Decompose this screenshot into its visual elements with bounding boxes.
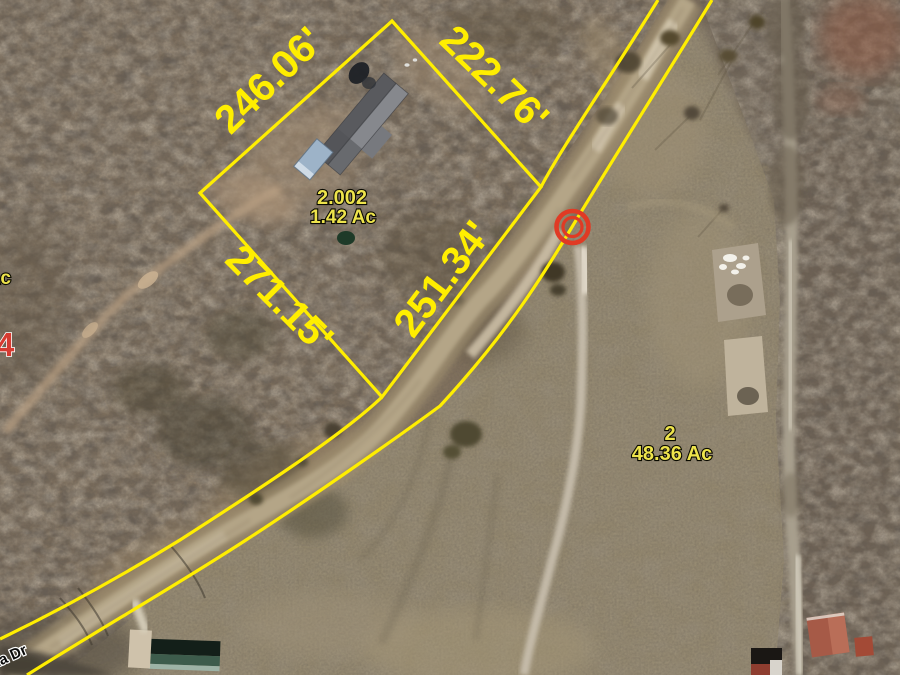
svg-text:Ac: Ac xyxy=(0,268,11,289)
svg-text:4: 4 xyxy=(0,326,15,363)
svg-text:48.36 Ac: 48.36 Ac xyxy=(632,443,712,465)
svg-text:2.002: 2.002 xyxy=(317,187,367,209)
svg-text:1.42 Ac: 1.42 Ac xyxy=(310,207,376,228)
svg-text:2: 2 xyxy=(664,423,675,445)
